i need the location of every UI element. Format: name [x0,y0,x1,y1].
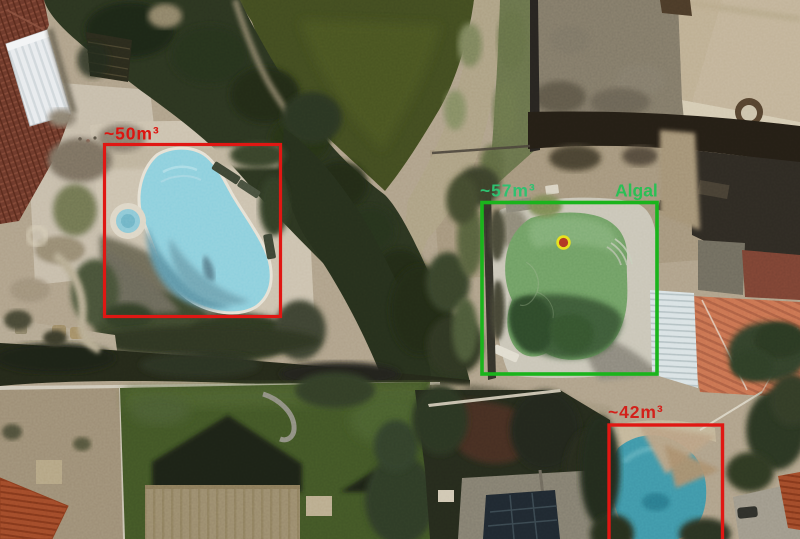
svg-text:Algal: Algal [615,181,658,201]
svg-text:~57m³: ~57m³ [480,181,536,201]
svg-text:~50m³: ~50m³ [104,124,160,144]
svg-text:~42m³: ~42m³ [608,402,664,422]
